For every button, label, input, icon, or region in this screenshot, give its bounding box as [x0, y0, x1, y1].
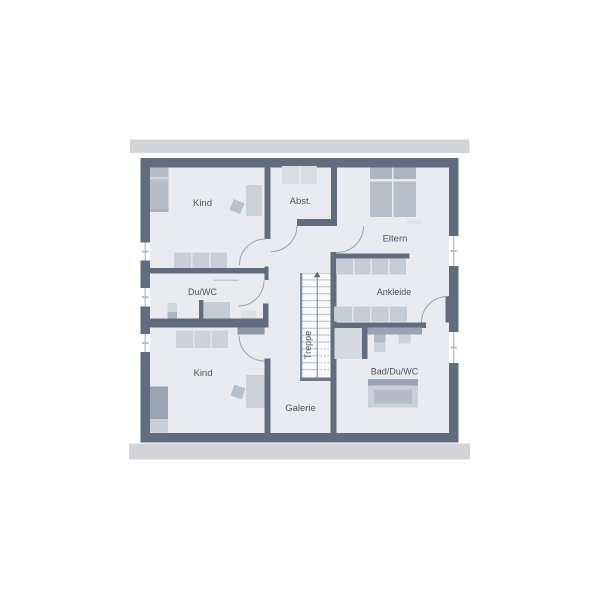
svg-text:Bad/Du/WC: Bad/Du/WC — [371, 367, 419, 377]
svg-text:Du/WC: Du/WC — [188, 287, 218, 297]
svg-text:Abst.: Abst. — [290, 196, 312, 207]
svg-text:Ankleide: Ankleide — [377, 287, 412, 297]
svg-text:Treppe: Treppe — [303, 331, 313, 359]
svg-text:Eltern: Eltern — [383, 234, 408, 245]
svg-text:Kind: Kind — [193, 368, 212, 379]
svg-text:Galerie: Galerie — [285, 403, 316, 414]
svg-text:Kind: Kind — [193, 198, 212, 209]
